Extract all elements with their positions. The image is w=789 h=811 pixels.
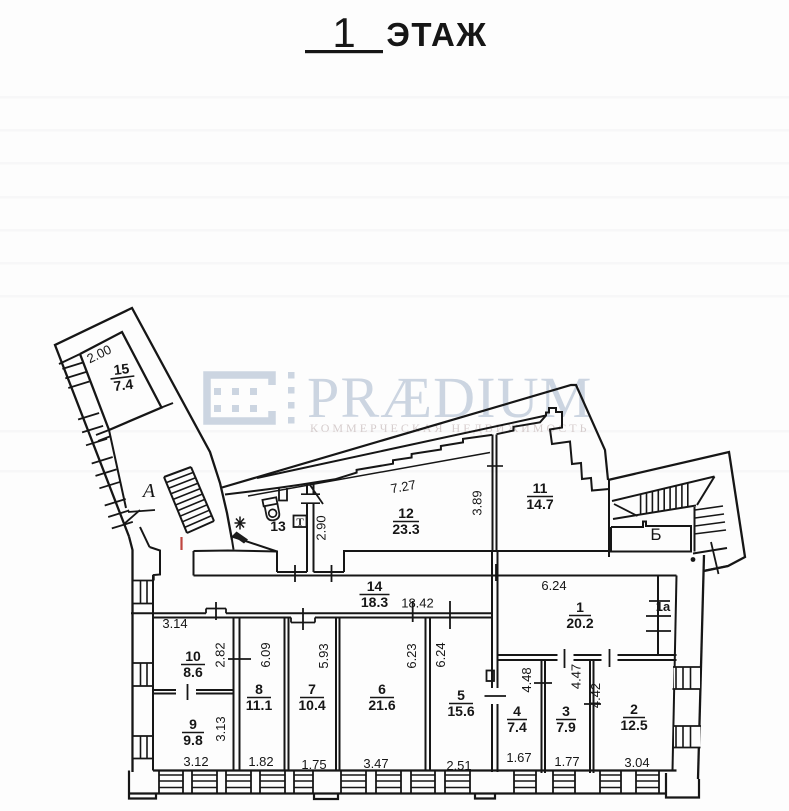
- svg-text:3.14: 3.14: [162, 616, 187, 631]
- svg-text:4: 4: [513, 703, 521, 719]
- svg-text:12: 12: [398, 505, 414, 521]
- svg-text:2.82: 2.82: [213, 642, 228, 667]
- svg-text:12.5: 12.5: [620, 717, 647, 733]
- svg-text:3.04: 3.04: [624, 755, 649, 770]
- svg-text:1.67: 1.67: [506, 750, 531, 765]
- svg-text:10: 10: [185, 648, 201, 664]
- svg-text:1.77: 1.77: [554, 754, 579, 769]
- svg-text:6: 6: [378, 681, 386, 697]
- svg-text:7.9: 7.9: [556, 719, 576, 735]
- svg-text:1а: 1а: [656, 599, 671, 614]
- svg-text:КОММЕРЧЕСКАЯ НЕДВИЖИМОСТЬ: КОММЕРЧЕСКАЯ НЕДВИЖИМОСТЬ: [310, 421, 590, 435]
- svg-text:1: 1: [332, 9, 355, 56]
- svg-text:8.6: 8.6: [183, 664, 203, 680]
- svg-text:5: 5: [457, 687, 465, 703]
- svg-text:10.4: 10.4: [298, 697, 325, 713]
- svg-text:7: 7: [308, 681, 316, 697]
- svg-text:6.24: 6.24: [433, 642, 448, 667]
- svg-text:3: 3: [562, 703, 570, 719]
- svg-text:3.13: 3.13: [213, 716, 228, 741]
- svg-text:7.4: 7.4: [507, 719, 527, 735]
- svg-text:3.89: 3.89: [470, 490, 485, 515]
- svg-text:23.3: 23.3: [392, 521, 419, 537]
- svg-text:20.2: 20.2: [566, 615, 593, 631]
- svg-text:3.12: 3.12: [183, 754, 208, 769]
- svg-text:1: 1: [576, 599, 584, 615]
- svg-text:15: 15: [113, 360, 131, 378]
- svg-text:11.1: 11.1: [246, 697, 273, 713]
- svg-text:15.6: 15.6: [447, 703, 474, 719]
- svg-text:4.48: 4.48: [519, 667, 534, 692]
- svg-text:18.42: 18.42: [401, 596, 434, 611]
- svg-text:6.09: 6.09: [258, 642, 273, 667]
- svg-text:9.8: 9.8: [183, 732, 203, 748]
- svg-text:7.4: 7.4: [113, 376, 134, 394]
- svg-text:21.6: 21.6: [368, 697, 395, 713]
- svg-text:4.47: 4.47: [569, 664, 584, 689]
- svg-text:3.47: 3.47: [363, 756, 388, 771]
- svg-text:ЭТАЖ: ЭТАЖ: [386, 16, 487, 53]
- svg-text:Б: Б: [650, 525, 661, 544]
- svg-text:Т: Т: [296, 517, 304, 529]
- svg-text:5.93: 5.93: [316, 643, 331, 668]
- svg-text:6.23: 6.23: [404, 643, 419, 668]
- svg-text:А: А: [141, 480, 156, 502]
- svg-text:2.90: 2.90: [314, 515, 329, 540]
- svg-text:8: 8: [255, 681, 263, 697]
- svg-text:1.82: 1.82: [248, 754, 273, 769]
- svg-text:14.7: 14.7: [526, 496, 553, 512]
- svg-text:9: 9: [189, 716, 197, 732]
- svg-text:14: 14: [367, 578, 383, 594]
- svg-text:2: 2: [630, 701, 638, 717]
- svg-text:4.42: 4.42: [588, 683, 603, 708]
- svg-text:6.24: 6.24: [541, 578, 566, 593]
- svg-text:18.3: 18.3: [361, 594, 388, 610]
- svg-text:11: 11: [533, 480, 548, 496]
